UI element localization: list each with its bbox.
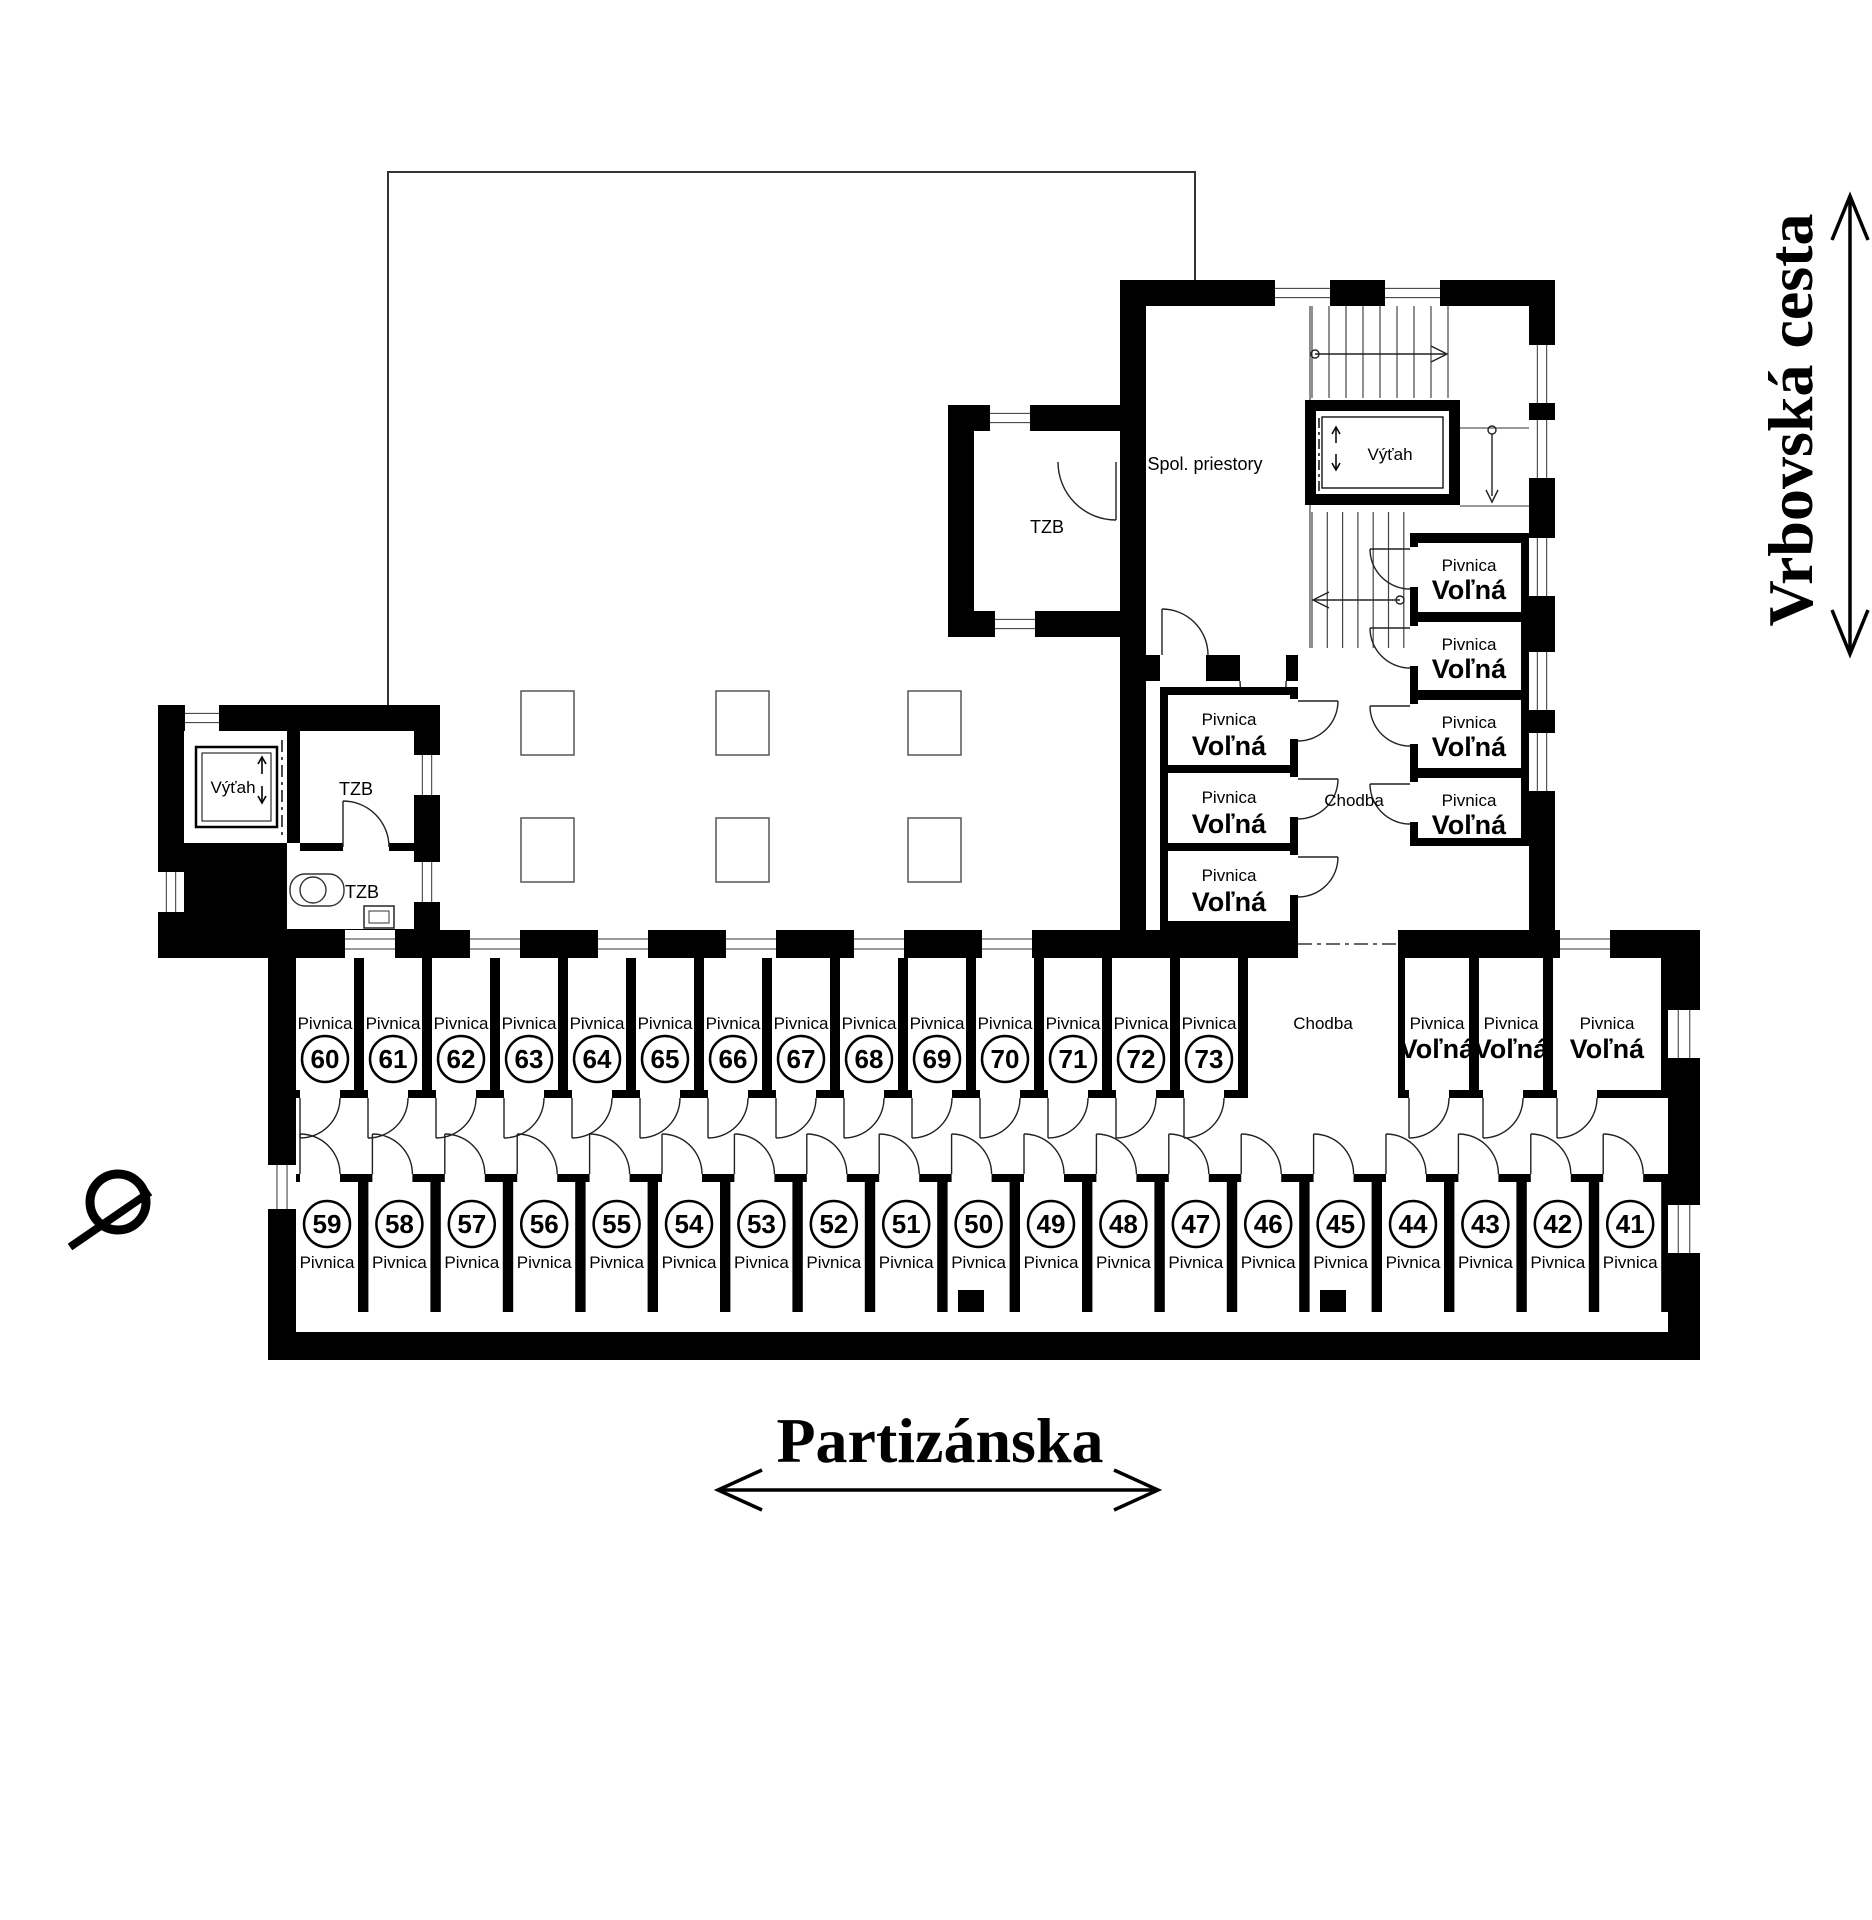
column-pillar [716, 818, 769, 882]
wall-stub [1320, 1290, 1346, 1312]
window [1668, 1010, 1700, 1058]
cellar-number: 67 [787, 1044, 816, 1074]
window [1529, 538, 1555, 596]
window [598, 930, 648, 958]
cellar-number: 55 [602, 1209, 631, 1239]
free-label: Voľná [1432, 575, 1507, 605]
cellar-label: Pivnica [1114, 1014, 1169, 1033]
cellar-label: Pivnica [1410, 1014, 1465, 1033]
cellar-number: 46 [1254, 1209, 1283, 1239]
annex-elevator-label: Výťah [210, 778, 255, 797]
cellar-number: 57 [457, 1209, 486, 1239]
window [470, 930, 520, 958]
column-pillar [908, 818, 961, 882]
window [1560, 930, 1610, 958]
cellar-number: 44 [1399, 1209, 1428, 1239]
cellar-number: 45 [1326, 1209, 1355, 1239]
cellar-label: Pivnica [706, 1014, 761, 1033]
cellar-number: 58 [385, 1209, 414, 1239]
cellar-label: Pivnica [1313, 1253, 1368, 1272]
cellar-label: Pivnica [879, 1253, 934, 1272]
window [1385, 280, 1440, 306]
cellar-number: 48 [1109, 1209, 1138, 1239]
common-areas-label: Spol. priestory [1147, 454, 1262, 474]
cellar-label: Pivnica [1096, 1253, 1151, 1272]
window [414, 755, 440, 795]
cellar-label: Pivnica [444, 1253, 499, 1272]
cellar-label: Pivnica [1168, 1253, 1223, 1272]
cellar-label: Pivnica [734, 1253, 789, 1272]
washbasin-fixture [290, 874, 344, 906]
window [982, 930, 1032, 958]
window [268, 1165, 296, 1209]
cellar-label: Pivnica [1182, 1014, 1237, 1033]
cellar-number: 73 [1195, 1044, 1224, 1074]
cellar-label: Pivnica [1386, 1253, 1441, 1272]
window [1275, 280, 1330, 306]
free-label: Voľná [1192, 731, 1267, 761]
cellar-number: 56 [530, 1209, 559, 1239]
cellar-number: 68 [855, 1044, 884, 1074]
floor-plan-svg: Výťah TZB TZB TZB [0, 0, 1872, 1920]
cellar-number: 72 [1127, 1044, 1156, 1074]
cellar-label: Pivnica [1442, 791, 1497, 810]
cellar-label: Pivnica [570, 1014, 625, 1033]
cellar-number: 65 [651, 1044, 680, 1074]
floor-drain-fixture [364, 906, 394, 928]
cellar-label: Pivnica [434, 1014, 489, 1033]
free-label: Voľná [1432, 732, 1507, 762]
street-vrbovska-cesta: Vrbovská cesta [1755, 196, 1868, 654]
tower-elevator-label: Výťah [1367, 445, 1412, 464]
street-label-vrbovska-cesta: Vrbovská cesta [1755, 214, 1826, 627]
column-pillar [716, 691, 769, 755]
window [1529, 652, 1555, 710]
cellar-label: Pivnica [842, 1014, 897, 1033]
tower-elevator: Výťah [1305, 400, 1460, 505]
cellar-number: 52 [819, 1209, 848, 1239]
cellar-label: Pivnica [1580, 1014, 1635, 1033]
cellar-label: Pivnica [806, 1253, 861, 1272]
cellar-number: 71 [1059, 1044, 1088, 1074]
cellar-label: Pivnica [298, 1014, 353, 1033]
cellar-number: 62 [447, 1044, 476, 1074]
window [995, 611, 1035, 637]
free-label: Voľná [1192, 809, 1267, 839]
cellar-number: 61 [379, 1044, 408, 1074]
cellar-number: 54 [675, 1209, 704, 1239]
cellar-label: Pivnica [1442, 635, 1497, 654]
cellar-number: 64 [583, 1044, 612, 1074]
cellar-label: Pivnica [1458, 1253, 1513, 1272]
free-label: Voľná [1570, 1034, 1645, 1064]
cellar-label: Pivnica [662, 1253, 717, 1272]
cellar-label: Pivnica [910, 1014, 965, 1033]
cellar-label: Pivnica [774, 1014, 829, 1033]
cellar-number: 59 [313, 1209, 342, 1239]
window [1529, 345, 1555, 403]
cellar-label: Pivnica [1202, 788, 1257, 807]
cellar-label: Pivnica [502, 1014, 557, 1033]
cellar-number: 70 [991, 1044, 1020, 1074]
window [1668, 1205, 1700, 1253]
cellar-label: Pivnica [300, 1253, 355, 1272]
street-label-partizanska: Partizánska [776, 1405, 1103, 1476]
cellar-number: 43 [1471, 1209, 1500, 1239]
window [990, 405, 1030, 431]
cellar-number: 53 [747, 1209, 776, 1239]
strip-corridor-label: Chodba [1293, 1014, 1353, 1033]
wall-stub [958, 1290, 984, 1312]
cellar-label: Pivnica [372, 1253, 427, 1272]
cellar-label: Pivnica [1442, 556, 1497, 575]
window [345, 930, 395, 958]
window [726, 930, 776, 958]
annex-tzb2-label: TZB [345, 882, 379, 902]
window [1529, 420, 1555, 478]
cellar-label: Pivnica [951, 1253, 1006, 1272]
cellar-label: Pivnica [1603, 1253, 1658, 1272]
cellar-label: Pivnica [978, 1014, 1033, 1033]
cellar-label: Pivnica [1530, 1253, 1585, 1272]
cellar-number: 42 [1543, 1209, 1572, 1239]
cellar-label: Pivnica [366, 1014, 421, 1033]
cellar-label: Pivnica [517, 1253, 572, 1272]
cellar-label: Pivnica [589, 1253, 644, 1272]
cellar-label: Pivnica [1442, 713, 1497, 732]
window [1529, 733, 1555, 791]
cellar-number: 69 [923, 1044, 952, 1074]
cellar-label: Pivnica [1241, 1253, 1296, 1272]
cellar-number: 51 [892, 1209, 921, 1239]
free-label: Voľná [1432, 654, 1507, 684]
cellar-label: Pivnica [1202, 710, 1257, 729]
tower-corridor-label: Chodba [1324, 791, 1384, 810]
west-tzb-label: TZB [1030, 517, 1064, 537]
free-label: Voľná [1400, 1034, 1475, 1064]
window [185, 705, 219, 731]
window [158, 872, 184, 912]
free-label: Voľná [1432, 810, 1507, 840]
window [414, 862, 440, 902]
cellar-number: 47 [1181, 1209, 1210, 1239]
column-pillar [521, 818, 574, 882]
cellar-label: Pivnica [1484, 1014, 1539, 1033]
column-pillar [521, 691, 574, 755]
cellar-number: 63 [515, 1044, 544, 1074]
window [854, 930, 904, 958]
cellar-number: 66 [719, 1044, 748, 1074]
cellar-label: Pivnica [1024, 1253, 1079, 1272]
cellar-label: Pivnica [1046, 1014, 1101, 1033]
cellar-label: Pivnica [1202, 866, 1257, 885]
cellar-number: 41 [1616, 1209, 1645, 1239]
cellar-number: 49 [1037, 1209, 1066, 1239]
cellar-number: 50 [964, 1209, 993, 1239]
cellar-number: 60 [311, 1044, 340, 1074]
annex-tzb1-label: TZB [339, 779, 373, 799]
column-pillar [908, 691, 961, 755]
cellar-label: Pivnica [638, 1014, 693, 1033]
free-label: Voľná [1474, 1034, 1549, 1064]
free-label: Voľná [1192, 887, 1267, 917]
